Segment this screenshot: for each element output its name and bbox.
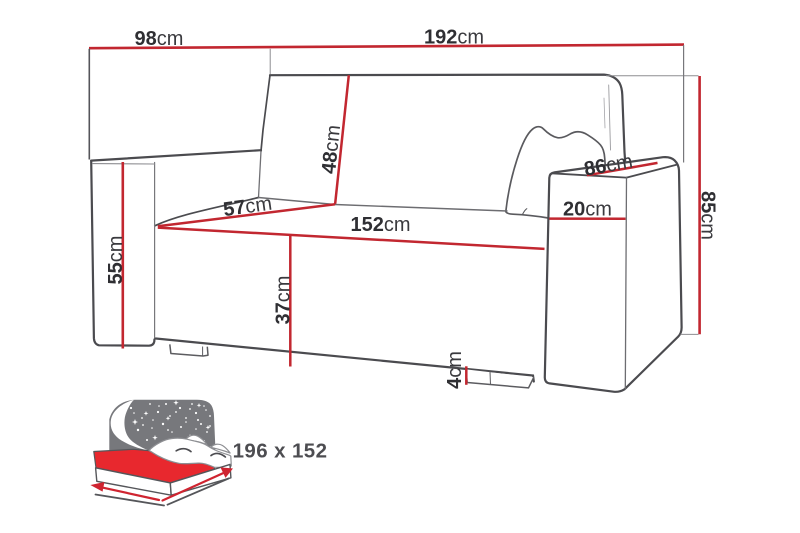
svg-text:57cm: 57cm	[222, 193, 274, 222]
svg-text:55cm: 55cm	[105, 236, 127, 285]
svg-text:20cm: 20cm	[563, 199, 612, 221]
svg-text:98cm: 98cm	[135, 28, 184, 50]
svg-text:196 x 152: 196 x 152	[233, 440, 328, 463]
svg-text:4cm: 4cm	[444, 351, 466, 389]
svg-text:85cm: 85cm	[697, 191, 719, 240]
svg-text:192cm: 192cm	[424, 27, 484, 49]
svg-text:48cm: 48cm	[318, 124, 345, 175]
svg-text:37cm: 37cm	[273, 276, 295, 325]
svg-text:152cm: 152cm	[350, 214, 410, 236]
